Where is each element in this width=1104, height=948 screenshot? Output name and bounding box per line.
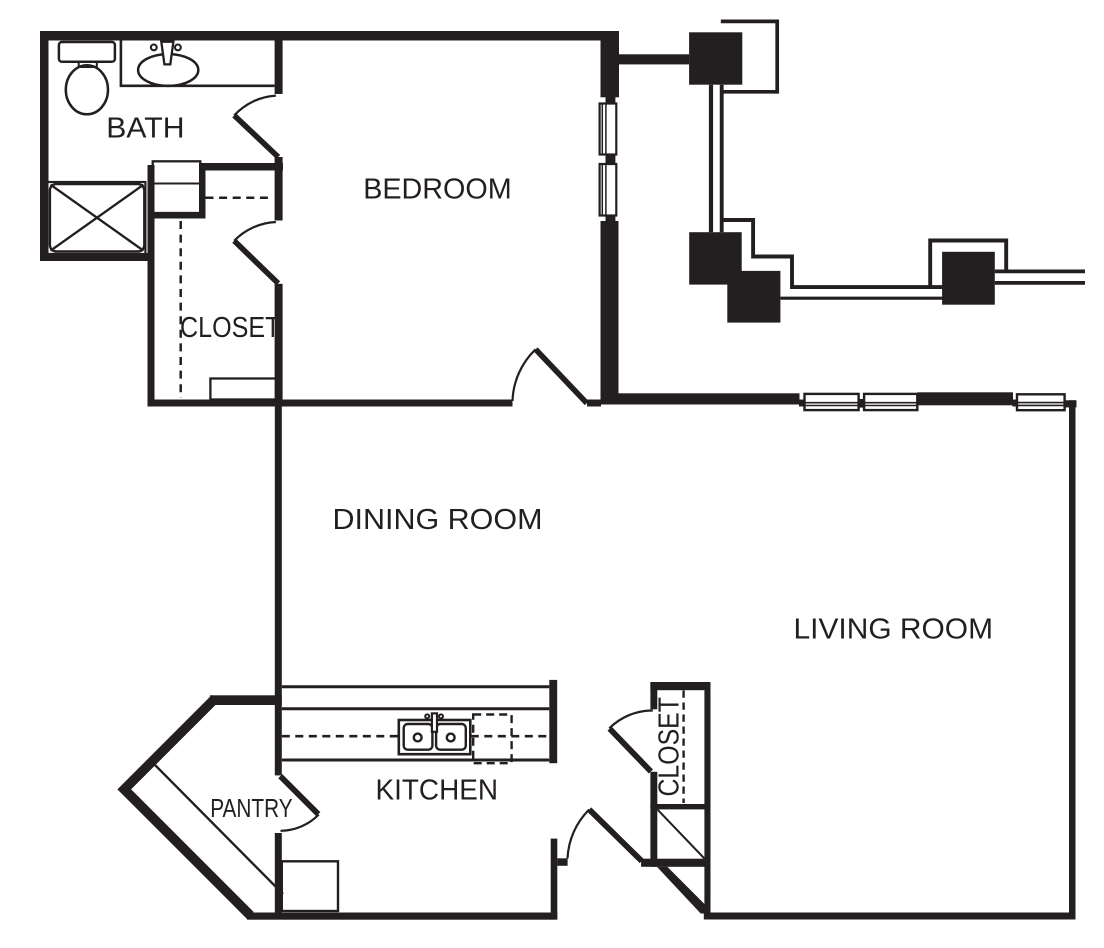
svg-text:PANTRY: PANTRY	[210, 795, 293, 823]
svg-text:LIVING ROOM: LIVING ROOM	[794, 613, 994, 645]
svg-text:BATH: BATH	[106, 112, 184, 144]
svg-text:CLOSET: CLOSET	[180, 312, 281, 344]
svg-text:BEDROOM: BEDROOM	[363, 174, 512, 206]
svg-text:KITCHEN: KITCHEN	[376, 775, 499, 807]
svg-text:DINING ROOM: DINING ROOM	[333, 504, 543, 536]
svg-text:CLOSET: CLOSET	[654, 697, 686, 797]
